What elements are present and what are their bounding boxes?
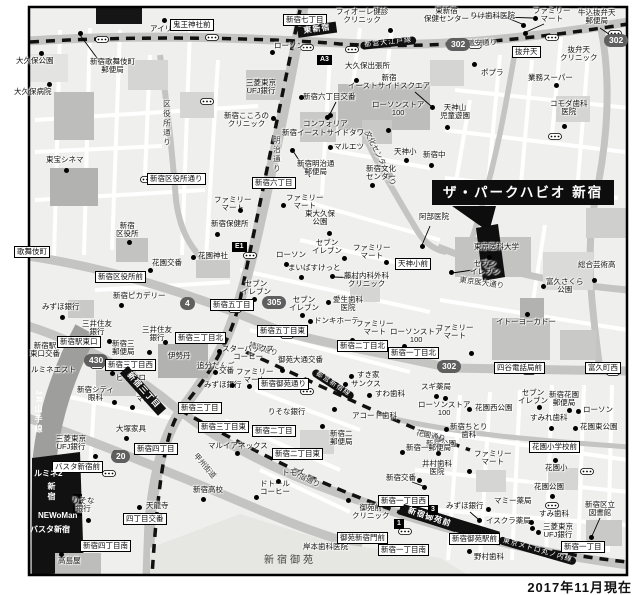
map-label: 新宿文化 センター [366,165,396,182]
poi-dot [299,95,304,100]
poi-dot [589,535,594,540]
map-label: バスタ新宿 [30,526,70,535]
map-label: ローソン [276,251,306,259]
road-tokyo-idai-dori: 東京医大通り [459,276,505,291]
poi-dot [64,168,69,173]
map-label: ルミネエスト [31,366,76,374]
map-label: 総合芸術高 [578,261,616,269]
map-label: 新宿一丁目 [561,541,605,553]
map-label: 新宿一丁目南 [378,544,429,556]
map-label: アコード歯科 [352,412,397,420]
poi-dot [110,371,115,376]
map-label: 四丁目交番 [123,513,167,525]
map-label: みずほ銀行 [446,502,484,510]
map-label: 三菱東京 UFJ銀行 [543,523,573,540]
map-label: 愛生歯科 医院 [333,296,363,313]
map-label: 花園西公園 [475,404,513,412]
map-label: 御苑大通交番 [278,356,323,364]
map-label: 東京医科大学 [474,243,519,251]
map-label: 井村歯科 医院 [422,460,452,477]
poi-dot [487,255,492,260]
map-label: ポプラ [481,69,504,77]
poi-dot [388,28,393,33]
map-label: 東大久保 公園 [305,210,335,227]
map-label: 新宿三 郵便局 [112,340,135,357]
road-shokuan-dori: 職安通り [467,38,497,48]
route-shield-302: 302 [446,38,470,51]
map-label: 新宿区役所通り [147,173,206,185]
map-label: 阿部医院 [419,213,449,221]
map-label: 新宿四丁目南 [80,540,131,552]
poi-dot [562,124,567,129]
poi-dot [107,339,112,344]
poi-dot [230,383,235,388]
map-label: 新宿イーストサイドタワー [282,129,372,137]
map-label: 新宿区立 図書館 [585,501,615,518]
route-shield-302: 302 [437,360,461,373]
map-label: 花園公園 [534,483,564,491]
map-label: 新宿二丁目北 [337,340,388,352]
poi-dot [238,208,243,213]
poi-dot [529,520,534,525]
poi-dot [536,530,541,535]
poi-dot [567,408,572,413]
map-label: 大塚家具 [116,425,146,433]
poi-dot [328,145,333,150]
map-label: 新宿交番 [386,474,416,482]
poi-dot [281,203,286,208]
route-shield-4: 4 [180,297,195,310]
poi-dot [469,351,474,356]
map-label: 新宿六丁目 [252,177,296,189]
map-label: ローソンストア 100 [372,101,424,118]
map-label: すみれ歯科 [530,414,568,422]
map-label: スターバックス コーヒー [222,345,274,362]
poi-dot [444,427,449,432]
map-label: 野村歯科 [474,553,504,561]
poi-dot [217,349,222,354]
poi-dot [119,303,124,308]
poi-dot [420,244,425,249]
rail-toei-oedo-line: 都営大江戸線 [360,36,417,50]
map-label: 新宿高校 [193,486,223,494]
poi-dot [354,78,359,83]
map-label: 新宿 イーストサイドスクエア [348,74,430,91]
poi-dot [573,426,578,431]
map-label: 新宿駅東口 [57,336,101,348]
route-shield-20: 20 [111,450,130,463]
poi-dot [213,370,218,375]
road-meiji-dori: 明治通り [272,136,280,174]
map-label: マミー薬局 [494,497,532,505]
poi-dot [235,451,240,456]
poi-dot [342,256,347,261]
map-label: フィオーレ健診 クリニック [336,8,388,25]
map-label: 業務スーパー [528,74,573,82]
poi-dot [247,384,252,389]
poi-dot [430,105,435,110]
poi-dot [270,50,275,55]
map-label: まいばすけっと [288,264,341,272]
poi-dot [422,485,427,490]
poi-dot [477,518,482,523]
map-label: 三菱東京 UFJ銀行 [56,435,86,452]
poi-dot [576,409,581,414]
poi-dot [284,262,289,267]
map-label: りそな銀行 [268,408,306,416]
poi-dot [525,312,530,317]
map-label: 藤村内科外科 クリニック [344,272,389,289]
map-label: 新宿三丁目北 [175,332,226,344]
map-label: ドンキホーテ [314,317,359,325]
map-label: サンクス [351,380,381,388]
map-label: ファミリー マート [353,244,391,261]
poi-dot [162,18,167,23]
map-label: 新宿五丁目 [210,299,254,311]
map-label: 三菱東京 UFJ銀行 [246,79,276,96]
map-label: ローソンストア 100 [390,328,442,345]
poi-dot [300,313,305,318]
map-label: 三井住友 銀行 [82,320,112,337]
map-label: 東新宿 保健センター [424,7,469,24]
map-label: すみ歯科 [539,510,569,518]
poi-dot [386,128,391,133]
map-label: トモズ [282,469,305,477]
map-label: 岸本歯科医院 [303,543,348,551]
poi-dot [78,31,83,36]
poi-dot [124,436,129,441]
map-page: ザ・パークハビオ 新宿アイリー鬼王神社前新宿七丁目フィオーレ健診 クリニック東新… [0,0,640,595]
poi-dot [537,405,542,410]
map-label: 新宿二丁目東 [272,448,323,460]
map-label: 新宿明治通 郵便局 [297,160,335,177]
area-shinjuku-gyoen: 新宿御苑 [264,555,316,566]
map-label: 花園小 [545,464,568,472]
map-label: 歌舞伎町 [14,246,50,258]
poi-dot [429,163,434,168]
poi-dot [93,454,98,459]
poi-dot [417,478,422,483]
map-label: セブン イレブン [312,239,342,256]
exit-e1: E1 [232,242,247,252]
map-label: 天神小前 [395,258,431,270]
poi-dot [550,494,555,499]
poi-dot [147,350,152,355]
map-label: 新宿駅 東口交番 [30,342,60,359]
map-label: 抜弁天 クリニック [560,46,598,63]
poi-dot [367,393,372,398]
exit-1: 1 [394,519,404,529]
poi-dot [59,552,64,557]
map-label: 天龍寺 [146,502,169,510]
map-label: NEWoMan [38,512,77,521]
poi-dot [549,426,554,431]
map-label: 鬼王神社前 [170,19,214,31]
poi-dot [330,274,335,279]
rail-toei-shinjuku-line: 都営新宿線 [311,368,356,401]
poi-dot [486,507,491,512]
poi-dot [112,400,117,405]
map-label: 天神山 児童遊園 [440,104,470,121]
poi-dot [130,405,135,410]
map-label: 天神小 [394,148,417,156]
map-label: ファミリー マート [474,450,512,467]
map-label: ドトール コーヒー [260,480,290,497]
map-label: 新宿こころの クリニック [224,112,269,129]
map-label: 新宿六丁目交番 [303,93,356,101]
poi-dot [137,505,142,510]
poi-dot [47,82,52,87]
map-date: 2017年11月現在 [527,577,632,595]
map-label: イトーヨーカドー [496,318,556,326]
poi-dot [523,31,528,36]
map-label: 高島屋 [58,557,81,565]
map-label: セブン イレブン [470,260,500,277]
route-shield-302: 302 [604,34,628,47]
map-label: 新宿花園 郵便局 [549,391,579,408]
map-label: ルミネ2 [34,470,62,479]
map-label: 花園神社 [198,252,228,260]
poi-dot [148,268,153,273]
poi-dot [370,183,375,188]
poi-dot [325,115,330,120]
map-label: ローソンストア 100 [418,401,470,418]
map-label: 新宿ちとり 歯科 [450,423,488,440]
rail-jr-yamanote-line: JR山手線 [33,390,42,434]
map-label: セブン イレブン [518,389,548,406]
poi-dot [467,407,472,412]
road-koshu-kaido: 甲州街道 [192,452,218,480]
map-label: ファミリー マート [214,196,252,213]
map-labels-layer: ザ・パークハビオ 新宿アイリー鬼王神社前新宿七丁目フィオーレ健診 クリニック東新… [0,0,640,595]
poi-dot [445,125,450,130]
poi-dot [332,407,337,412]
map-label: 牛込抜弁天 郵便局 [578,9,616,26]
poi-dot [290,148,295,153]
map-label: 大久保病院 [14,88,52,96]
map-label: セブン イレブン [289,296,319,313]
map-label: 花園交番 [152,259,182,267]
map-label: 大久保出張所 [345,62,390,70]
poi-dot [521,23,526,28]
map-label: 新宿一郵便局 [406,444,451,452]
poi-dot [60,315,65,320]
map-label: 伊勢丹 [168,352,191,360]
poi-dot [472,62,477,67]
poi-dot [530,526,535,531]
map-label: 新宿二 郵便局 [330,430,353,447]
poi-dot [443,396,448,401]
map-label: イスクラ薬局 [486,517,531,525]
poi-dot [201,497,206,502]
map-label: 新宿二丁目 [252,425,296,437]
road-kuyakusho-dori: 区役所通り [162,100,170,148]
poi-dot [553,458,558,463]
poi-dot [127,240,132,245]
poi-dot [554,83,559,88]
poi-dot [404,158,409,163]
map-label: セブン イレブン [241,280,271,297]
map-label: 大久保公園 [16,57,54,65]
map-label: 新宿ピカデリー [113,292,166,300]
map-label: 四谷電話局前 [494,362,545,374]
poi-dot [299,275,304,280]
poi-dot [400,450,405,455]
map-label: 新宿三丁目東 [198,421,249,433]
poi-dot [541,284,546,289]
map-label: 交番 [219,367,234,375]
poi-dot [436,451,441,456]
map-label: 東宝シネマ [46,156,84,164]
poi-dot [320,424,325,429]
poi-dot [449,270,454,275]
area-map: ザ・パークハビオ 新宿アイリー鬼王神社前新宿七丁目フィオーレ健診 クリニック東新… [0,0,640,595]
poi-dot [280,368,285,373]
map-label: 新宿御苑通り [258,378,309,390]
map-label: 新宿三丁目 [178,402,222,414]
poi-dot [191,255,196,260]
poi-dot [467,469,472,474]
map-label: ローソン [274,42,304,50]
poi-dot [384,260,389,265]
poi-dot [434,394,439,399]
map-label: マルエツ [334,143,364,151]
map-label: 富久さくら 公園 [546,278,584,295]
map-label: 新宿五丁目東 [257,325,308,337]
poi-dot [215,232,220,237]
map-label: 新宿区役所前 [95,271,146,283]
route-shield-305: 305 [262,296,286,309]
map-label: みずほ銀行 [42,303,80,311]
map-label: 花園東公園 [580,423,618,431]
map-label: 抜弁天 [512,46,541,58]
poi-dot [467,549,472,554]
map-label: 新宿四丁目 [134,443,178,455]
map-label: みずほ銀行 [204,381,242,389]
poi-dot [308,319,313,324]
map-label: 新宿御苑駅前 [449,533,500,545]
poi-dot [592,278,597,283]
exit-3: 3 [428,505,438,515]
poi-dot [276,479,281,484]
poi-dot [163,340,168,345]
property-title-box: ザ・パークハビオ 新宿 [432,180,614,205]
poi-dot [254,495,259,500]
map-label: ファミリー マート [356,320,394,337]
map-label: マルイアネックス [208,442,268,450]
map-label: 御苑新宿門前 [337,532,388,544]
poi-dot [39,51,44,56]
map-label: スギ薬局 [421,383,451,391]
poi-dot [349,374,354,379]
map-label: 富久町西 [585,362,621,374]
station-shinjuku-jr: 新宿 [46,482,55,502]
map-label: コモダ歯科 医院 [550,100,588,117]
map-label: りけ歯科医院 [470,12,515,20]
map-label: 新宿一丁目北 [388,347,439,359]
poi-dot [86,518,91,523]
map-label: 新宿中 [423,151,446,159]
poi-dot [346,498,351,503]
map-label: ローソン [583,406,613,414]
map-label: 新宿シティ 眼科 [77,386,114,403]
map-label: すわ歯科 [375,390,405,398]
poi-dot [327,231,332,236]
map-label: 新宿歌舞伎町 郵便局 [90,58,135,75]
map-label: ファミリー マート [533,7,571,24]
map-label: 花園小学校前 [529,441,580,453]
poi-dot [271,116,276,121]
map-label: 新宿 区役所 [116,222,139,239]
exit-a3: A3 [317,55,332,65]
poi-dot [326,300,331,305]
map-label: 新宿保健所 [211,220,249,228]
poi-dot [533,16,538,21]
